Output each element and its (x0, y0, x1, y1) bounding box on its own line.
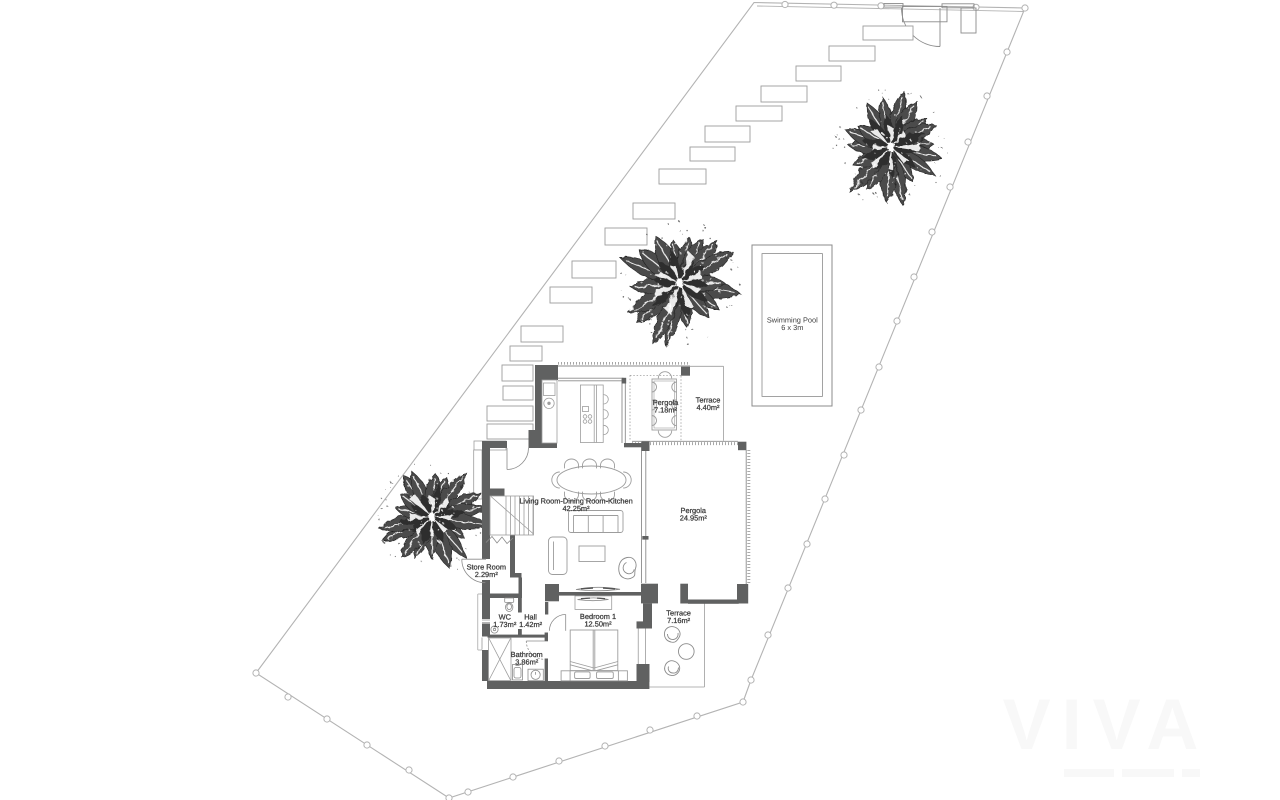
svg-text:VIVA: VIVA (1003, 685, 1210, 765)
svg-text:1.42m²: 1.42m² (519, 620, 543, 629)
svg-text:7.18m²: 7.18m² (654, 406, 678, 415)
svg-text:4.40m²: 4.40m² (696, 403, 720, 412)
svg-text:3.86m²: 3.86m² (515, 657, 539, 666)
svg-text:2.29m²: 2.29m² (475, 570, 499, 579)
svg-text:12.50m²: 12.50m² (584, 619, 612, 628)
svg-text:6 x 3m: 6 x 3m (781, 323, 803, 332)
svg-text:42.25m²: 42.25m² (562, 504, 590, 513)
svg-text:1.73m²: 1.73m² (493, 620, 517, 629)
svg-text:7.16m²: 7.16m² (667, 616, 691, 625)
svg-text:24.95m²: 24.95m² (680, 513, 708, 522)
